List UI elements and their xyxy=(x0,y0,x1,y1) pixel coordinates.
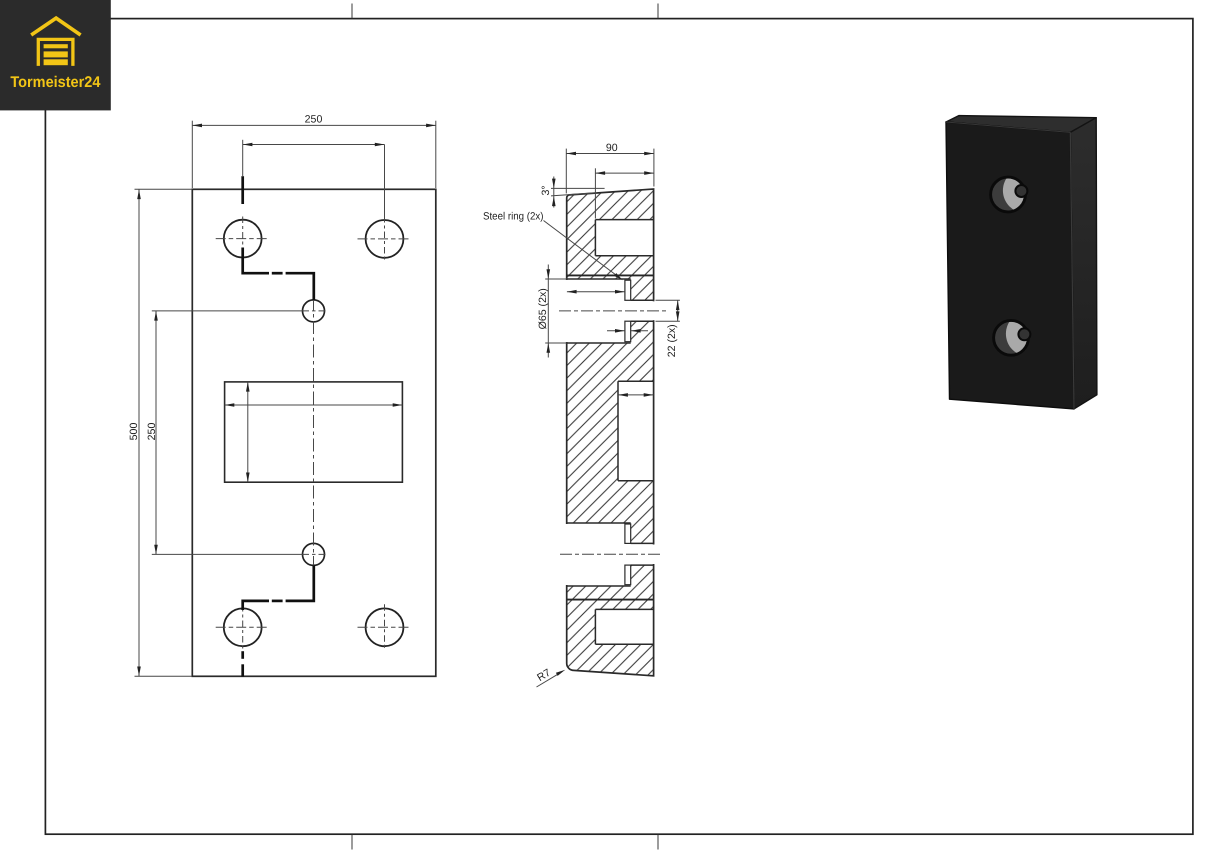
svg-text:Ø65 (2x): Ø65 (2x) xyxy=(537,288,549,329)
svg-text:250: 250 xyxy=(305,113,323,125)
svg-text:3°: 3° xyxy=(540,185,552,195)
svg-text:250: 250 xyxy=(146,423,158,441)
svg-text:500: 500 xyxy=(128,423,140,441)
svg-text:22 (2x): 22 (2x) xyxy=(666,324,678,357)
svg-text:Tormeister24: Tormeister24 xyxy=(10,74,100,91)
svg-text:Steel ring (2x): Steel ring (2x) xyxy=(483,210,544,222)
svg-text:90: 90 xyxy=(606,142,618,154)
